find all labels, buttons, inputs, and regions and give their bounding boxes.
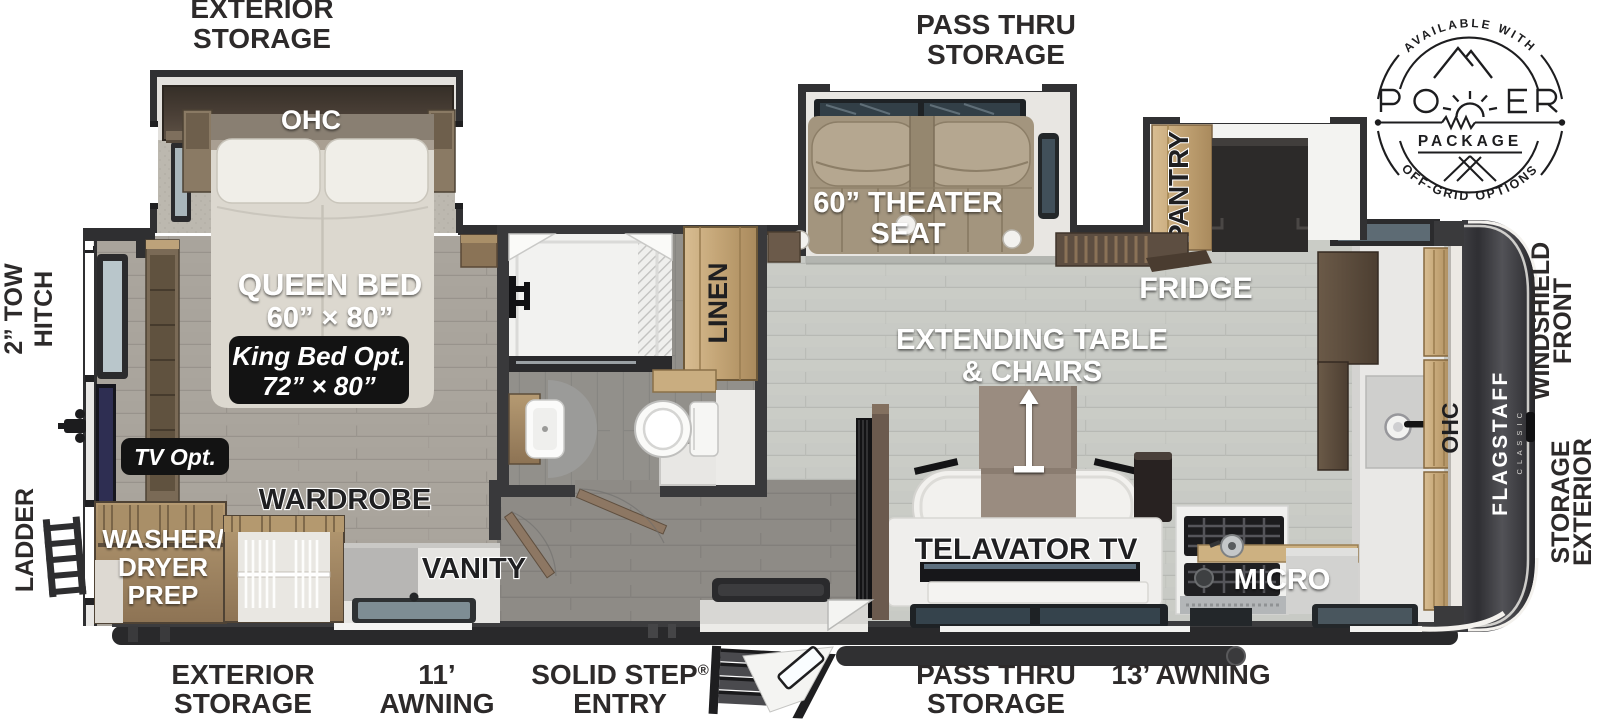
svg-text:SOLID STEP®: SOLID STEP® [531, 659, 709, 690]
svg-text:13’ AWNING: 13’ AWNING [1111, 659, 1270, 690]
svg-text:PACKAGE: PACKAGE [1418, 133, 1522, 150]
svg-text:EXTENDING TABLE: EXTENDING TABLE [896, 324, 1168, 356]
svg-text:WARDROBE: WARDROBE [259, 484, 431, 516]
svg-text:WINDSHIELD: WINDSHIELD [1527, 242, 1555, 400]
svg-text:PREP: PREP [128, 580, 199, 610]
svg-text:TELAVATOR TV: TELAVATOR TV [915, 533, 1138, 566]
svg-text:STORAGE: STORAGE [1547, 440, 1575, 563]
svg-text:MICRO: MICRO [1234, 564, 1331, 596]
svg-text:STORAGE: STORAGE [193, 23, 331, 54]
svg-text:OHC: OHC [281, 105, 341, 135]
svg-text:TV Opt.: TV Opt. [134, 444, 216, 470]
svg-text:LADDER: LADDER [11, 488, 39, 592]
svg-text:PASS THRU: PASS THRU [916, 9, 1076, 40]
svg-text:LINEN: LINEN [703, 263, 733, 344]
svg-text:FLAGSTAFF: FLAGSTAFF [1489, 370, 1512, 516]
svg-text:STORAGE: STORAGE [174, 688, 312, 719]
svg-text:HITCH: HITCH [30, 271, 58, 347]
svg-text:PASS THRU: PASS THRU [916, 659, 1076, 690]
svg-text:QUEEN BED: QUEEN BED [238, 267, 422, 302]
svg-text:ENTRY: ENTRY [573, 688, 667, 719]
svg-text:PANTRY: PANTRY [1163, 131, 1194, 243]
svg-text:EXTERIOR: EXTERIOR [190, 0, 333, 24]
svg-text:72” × 80”: 72” × 80” [262, 371, 375, 401]
svg-text:WASHER/: WASHER/ [102, 524, 223, 554]
svg-text:60” THEATER: 60” THEATER [813, 187, 1003, 219]
svg-text:60” × 80”: 60” × 80” [267, 302, 394, 334]
svg-text:OHC: OHC [1437, 402, 1463, 453]
svg-text:C L A S S I C: C L A S S I C [1515, 412, 1524, 475]
svg-text:DRYER: DRYER [118, 552, 208, 582]
svg-text:& CHAIRS: & CHAIRS [962, 356, 1102, 388]
svg-text:11’: 11’ [418, 659, 455, 690]
svg-text:FRIDGE: FRIDGE [1139, 272, 1252, 305]
svg-text:STORAGE: STORAGE [927, 39, 1065, 70]
svg-text:2” TOW: 2” TOW [0, 263, 28, 355]
svg-text:EXTERIOR: EXTERIOR [171, 659, 314, 690]
svg-text:SEAT: SEAT [870, 218, 945, 250]
svg-text:STORAGE: STORAGE [927, 688, 1065, 719]
svg-text:VANITY: VANITY [422, 553, 526, 585]
svg-text:AWNING: AWNING [379, 688, 494, 719]
svg-text:King Bed Opt.: King Bed Opt. [232, 341, 405, 371]
